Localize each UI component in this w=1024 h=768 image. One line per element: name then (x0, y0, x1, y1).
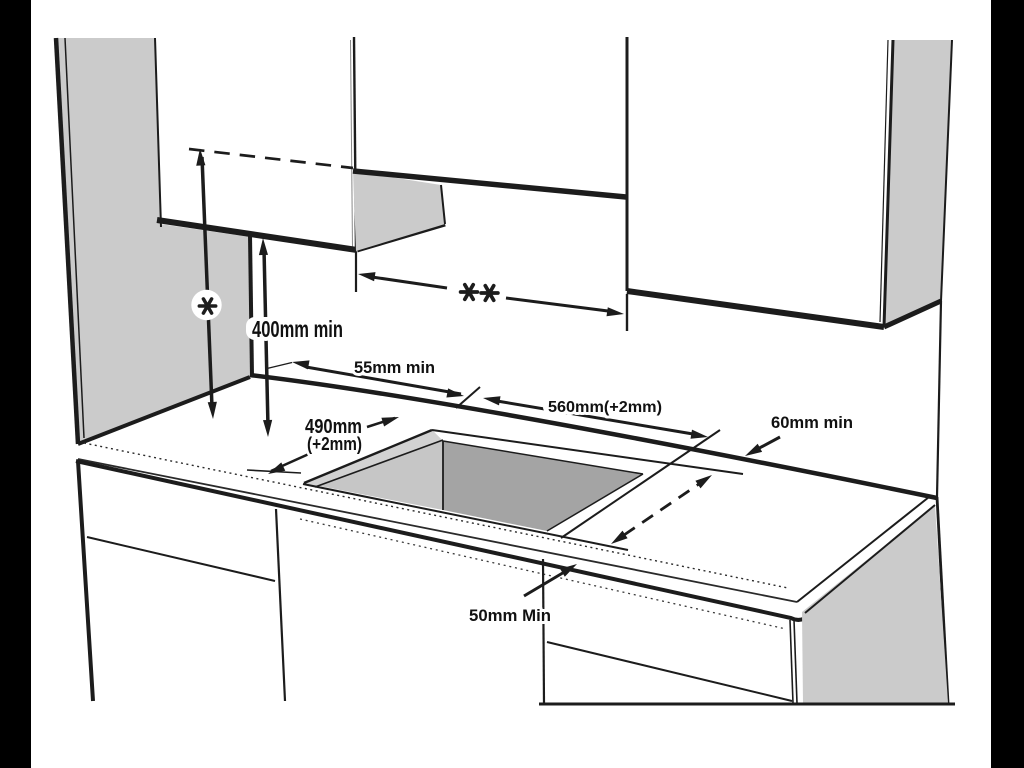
svg-text:50mm Min: 50mm Min (469, 607, 551, 625)
svg-text:400mm min: 400mm min (252, 316, 343, 342)
svg-text:560mm(+2mm): 560mm(+2mm) (548, 399, 662, 416)
svg-text:(+2mm): (+2mm) (307, 434, 362, 454)
svg-text:55mm min: 55mm min (354, 359, 435, 377)
svg-text:60mm min: 60mm min (771, 414, 853, 432)
